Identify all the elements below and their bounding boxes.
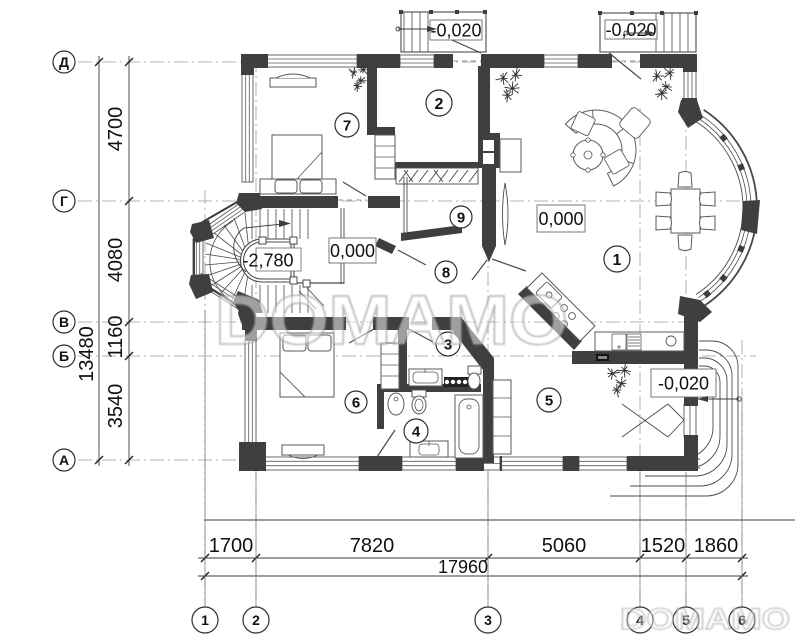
svg-text:6: 6 (352, 394, 360, 411)
svg-text:1160: 1160 (105, 315, 127, 358)
svg-text:DOMAMO: DOMAMO (620, 603, 790, 636)
svg-text:1: 1 (201, 612, 209, 628)
svg-text:-2,780: -2,780 (242, 251, 293, 271)
svg-text:DOMAMO: DOMAMO (215, 281, 568, 359)
svg-text:Б: Б (59, 348, 69, 364)
svg-text:-0,020: -0,020 (605, 20, 656, 40)
svg-text:1860: 1860 (694, 535, 739, 557)
svg-text:0,000: 0,000 (330, 241, 375, 261)
svg-text:2: 2 (435, 96, 444, 113)
svg-text:2: 2 (252, 612, 260, 628)
svg-text:3: 3 (484, 612, 492, 628)
svg-text:Г: Г (60, 193, 68, 209)
svg-text:5: 5 (545, 392, 553, 409)
svg-text:4080: 4080 (105, 238, 127, 283)
svg-text:8: 8 (442, 264, 450, 281)
svg-text:9: 9 (457, 209, 465, 226)
svg-text:В: В (59, 314, 69, 330)
svg-text:-0,020: -0,020 (658, 374, 709, 394)
svg-text:1700: 1700 (209, 535, 254, 557)
svg-text:5060: 5060 (542, 535, 587, 557)
svg-text:А: А (59, 452, 69, 468)
svg-text:3540: 3540 (105, 384, 127, 429)
svg-text:4700: 4700 (105, 107, 127, 152)
svg-text:1520: 1520 (641, 535, 686, 557)
svg-text:7: 7 (343, 117, 351, 134)
svg-text:13480: 13480 (76, 326, 98, 382)
svg-text:Д: Д (59, 54, 69, 70)
svg-text:1: 1 (613, 252, 622, 269)
svg-text:-0,020: -0,020 (430, 21, 481, 41)
svg-text:4: 4 (412, 423, 421, 440)
svg-text:17960: 17960 (438, 557, 488, 577)
svg-text:0,000: 0,000 (538, 209, 583, 229)
svg-text:7820: 7820 (350, 535, 395, 557)
